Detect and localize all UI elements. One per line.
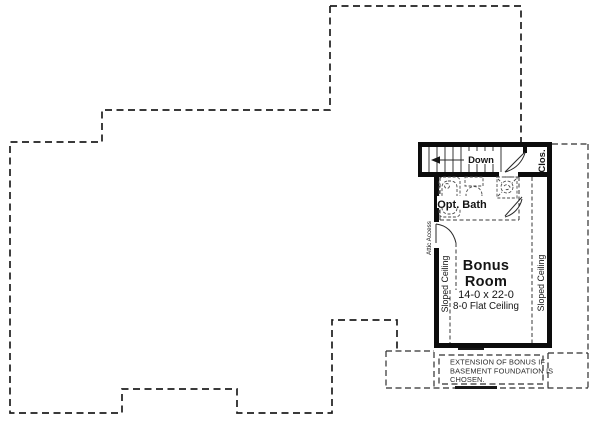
sloped-ceiling-right-label: Sloped Ceiling: [536, 255, 546, 312]
floor-plan: EXTENSION OF BONUS IF BASEMENT FOUNDATIO…: [0, 0, 600, 427]
outline-top-right-wing: [330, 6, 521, 142]
down-label: Down: [468, 155, 494, 166]
down-arrow: [431, 156, 467, 164]
bonus-room-label: Bonus Room 14-0 x 22-0 8-0 Flat Ceiling: [453, 258, 519, 312]
extension-note-line3: CHOSEN.: [450, 375, 485, 384]
opt-bath-label: Opt. Bath: [437, 199, 487, 211]
floor-plan-drawing: EXTENSION OF BONUS IF BASEMENT FOUNDATIO…: [0, 0, 600, 427]
wall-left-lower: [434, 248, 439, 343]
down-arrow-head: [431, 156, 440, 164]
bonus-room-name-line2: Room: [465, 274, 507, 290]
closet-door-leaf: [505, 152, 525, 172]
outline-main-footprint: [10, 6, 397, 413]
attic-access-label: Attic Access: [426, 221, 433, 255]
stairwell-bottom-wall: [418, 172, 499, 177]
bonus-room-ceiling-note: 8-0 Flat Ceiling: [453, 301, 519, 312]
wall-bottom: [434, 343, 552, 348]
bonus-room-dimensions: 14-0 x 22-0: [458, 289, 514, 301]
optional-bath: Opt. Bath: [437, 177, 522, 220]
extension-note-line1: EXTENSION OF BONUS IF: [450, 358, 545, 367]
staircase: Down: [421, 147, 501, 172]
bonus-room-name-line1: Bonus: [463, 258, 510, 274]
shower-icon: [497, 177, 517, 198]
closet-label: Clos.: [537, 149, 548, 172]
wall-break-mark-bottom: [455, 386, 497, 389]
sloped-ceiling-left-label: Sloped Ceiling: [440, 256, 450, 313]
wall-top: [418, 142, 552, 147]
attic-door-swing: [436, 224, 456, 243]
